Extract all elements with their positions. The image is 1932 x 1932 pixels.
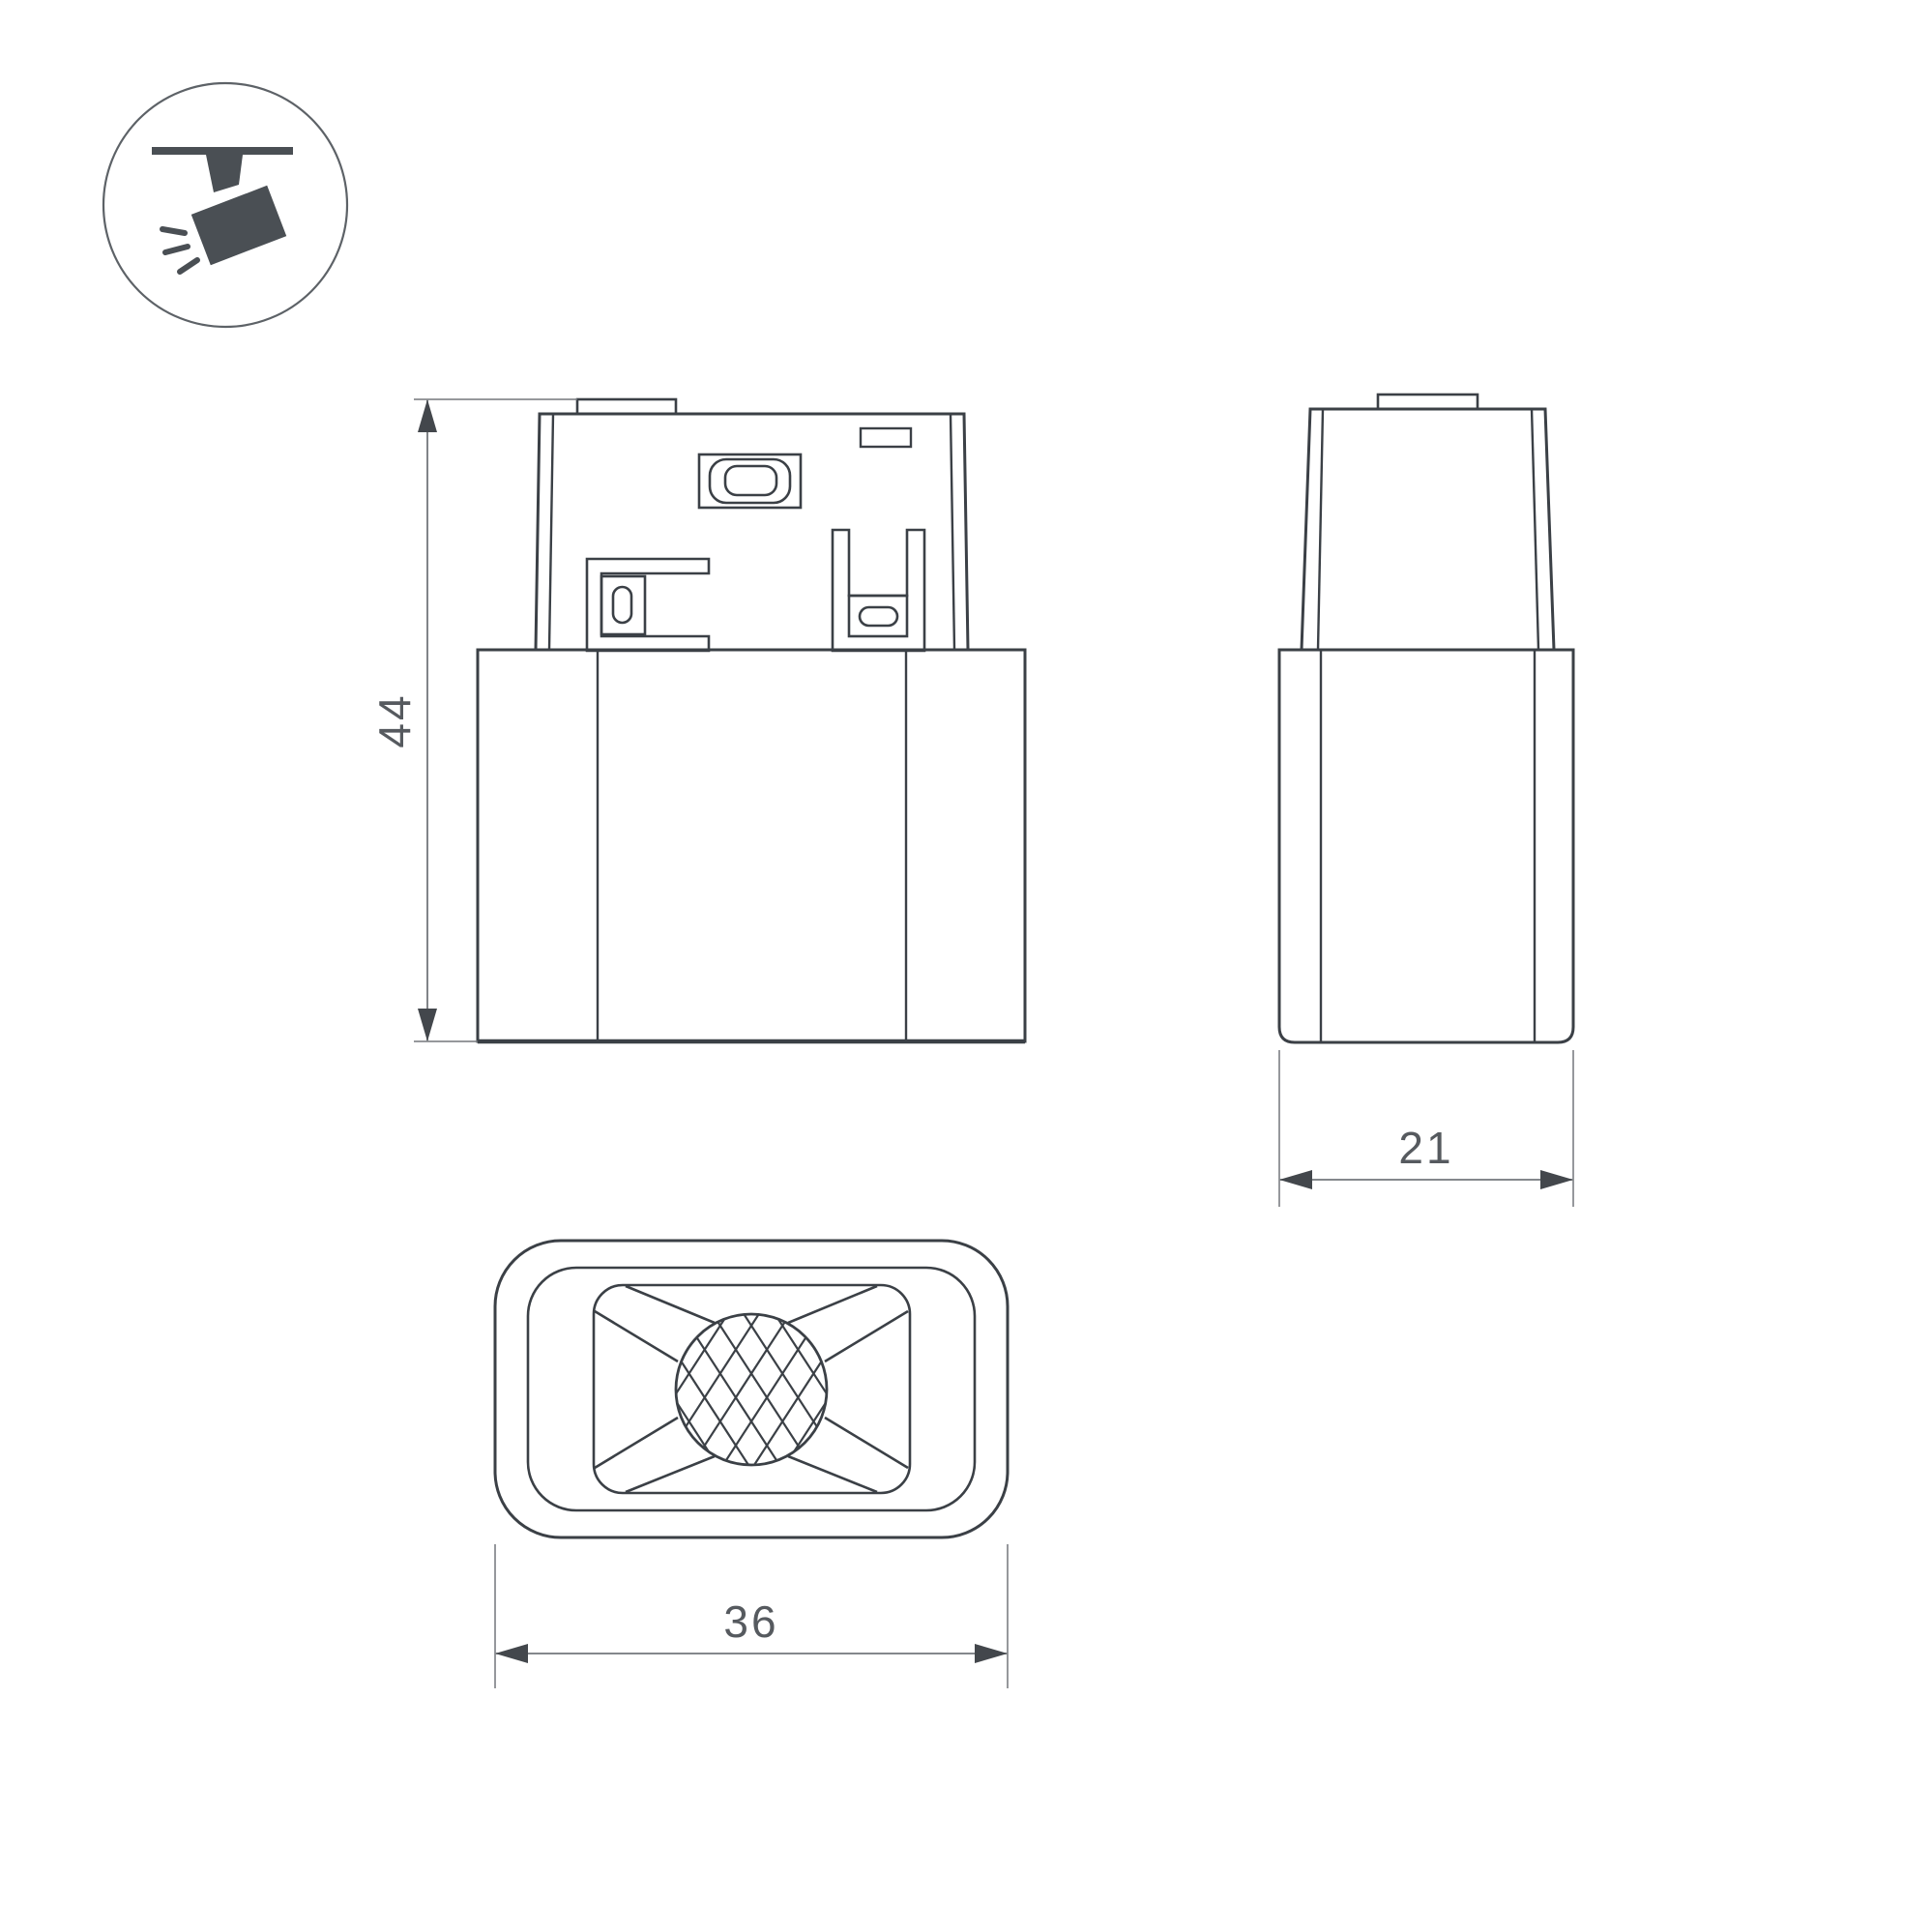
front-body (478, 650, 1025, 1041)
side-adapter-left-inner-line (1318, 409, 1323, 650)
icon-track-rail (152, 147, 293, 155)
front-right-contact-bracket (833, 530, 924, 651)
front-adapter-left-inner-line (549, 414, 553, 650)
icon-spot-head (191, 186, 286, 265)
front-left-contact-bracket (587, 559, 709, 651)
front-view (478, 399, 1025, 1041)
bottom-view (495, 1241, 1008, 1537)
dim-width-arrow-left (495, 1644, 528, 1663)
bottom-lens-hatch (612, 1251, 891, 1533)
dim-width-arrow-right (975, 1644, 1008, 1663)
dim-depth-arrow-left (1279, 1170, 1312, 1189)
icon-light-rays (162, 229, 197, 272)
bottom-lens-frame (594, 1285, 910, 1493)
dim-depth-arrow-right (1540, 1170, 1573, 1189)
front-adapter-right-inner-line (951, 414, 954, 650)
dimension-width: 36 (495, 1544, 1008, 1688)
front-top-right-slot (861, 428, 911, 447)
side-body (1279, 650, 1573, 1042)
dimensional-drawing-page: 44 21 (0, 0, 1932, 1932)
front-connector (699, 454, 801, 508)
drawing-svg: 44 21 (0, 0, 1932, 1932)
front-top-tab (577, 399, 676, 414)
side-adapter-outline (1302, 409, 1554, 650)
bottom-led-lens (612, 1251, 891, 1533)
dim-width-label: 36 (723, 1596, 778, 1647)
dim-height-arrow-down (418, 1009, 437, 1041)
side-view (1279, 395, 1573, 1042)
icon-stem (206, 155, 243, 192)
dimension-height: 44 (369, 399, 577, 1041)
track-spotlight-icon (103, 83, 347, 327)
dim-height-arrow-up (418, 399, 437, 432)
dimension-depth: 21 (1279, 1050, 1573, 1207)
dim-depth-label: 21 (1398, 1123, 1453, 1173)
dim-height-label: 44 (369, 692, 420, 747)
side-top-tab (1378, 395, 1478, 409)
bottom-reflector-facets (595, 1286, 908, 1492)
side-adapter-right-inner-line (1532, 409, 1538, 650)
